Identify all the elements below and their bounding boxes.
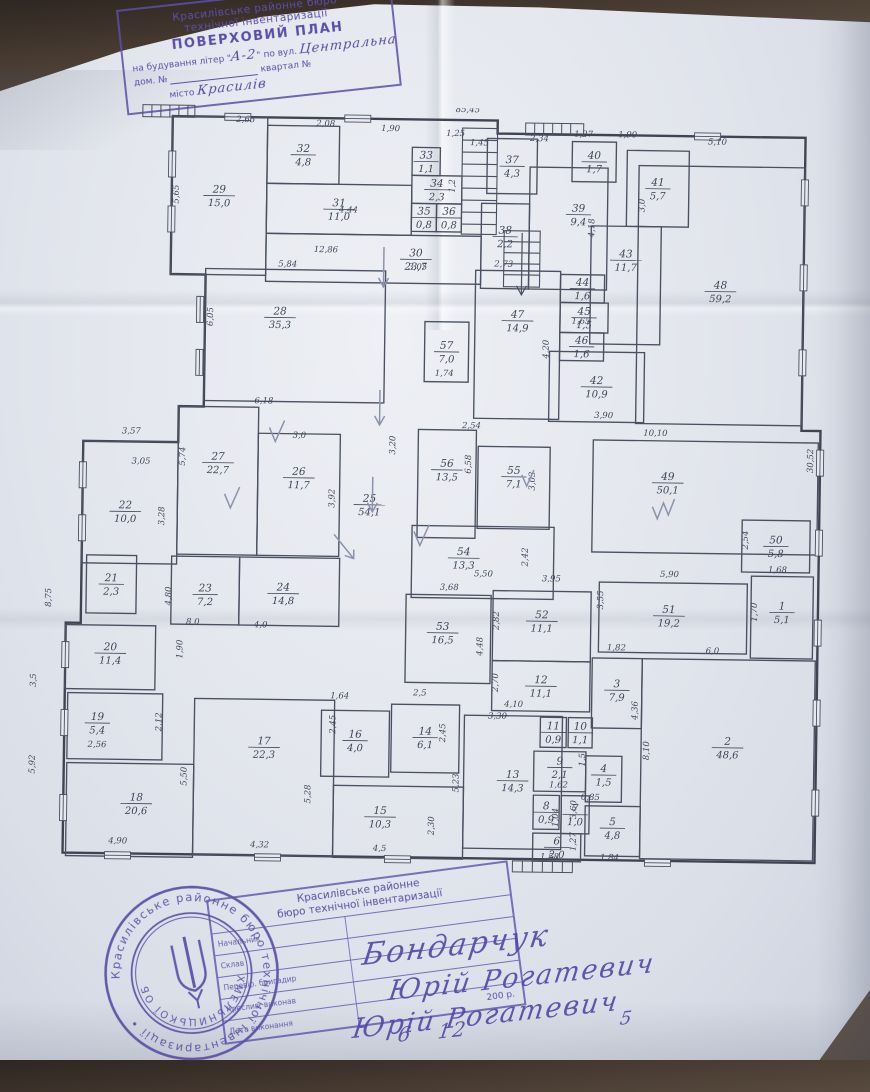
room-25-area: 54,1 bbox=[358, 507, 380, 518]
dim-label: 3,90 bbox=[594, 411, 614, 421]
stamp-city-label: місто bbox=[169, 88, 195, 101]
dim-label: 1,74 bbox=[435, 369, 454, 379]
dim-label: 1,27 bbox=[569, 832, 579, 852]
room-5-area: 4,8 bbox=[603, 831, 620, 842]
room-52-number: 52 bbox=[535, 609, 549, 621]
room-14-number: 14 bbox=[418, 726, 432, 738]
dim-label: 4,32 bbox=[249, 840, 269, 850]
room-47-number: 47 bbox=[510, 309, 525, 321]
room-2-area: 48,6 bbox=[715, 750, 739, 761]
dim-label: 3,05 bbox=[408, 262, 427, 272]
room-43-number: 43 bbox=[618, 248, 633, 260]
room-3-number: 3 bbox=[614, 678, 621, 690]
room-54-area: 13,3 bbox=[452, 560, 474, 571]
dim-label: 5,90 bbox=[660, 570, 680, 580]
room-20-area: 11,4 bbox=[99, 656, 121, 667]
room-49-walls bbox=[592, 440, 819, 555]
room-48-area: 59,2 bbox=[709, 294, 731, 305]
dim-label: 4,90 bbox=[107, 836, 128, 846]
room-26-area: 11,7 bbox=[287, 480, 310, 491]
dim-label: 4,36 bbox=[630, 700, 640, 721]
floor-plan: 2915,0324,83111,0331,1342,3350,8360,8302… bbox=[17, 102, 840, 889]
room-12-number: 12 bbox=[534, 674, 548, 686]
room-27-walls bbox=[177, 406, 259, 555]
room-35-area: 0,8 bbox=[416, 220, 432, 231]
dim-label: 2,45 bbox=[328, 715, 338, 735]
room-27-area: 22,7 bbox=[206, 465, 230, 476]
room-labels: 2915,0324,83111,0331,1342,3350,8360,8302… bbox=[83, 140, 801, 864]
dim-label: 4,18 bbox=[587, 218, 597, 239]
room-34-area: 2,3 bbox=[428, 192, 445, 203]
room-50-number: 50 bbox=[769, 534, 783, 546]
dim-label: 5,28 bbox=[303, 784, 313, 804]
room-18-area: 20,6 bbox=[124, 806, 148, 817]
dim-label: 0,85 bbox=[581, 793, 600, 803]
dim-label: 2,08 bbox=[315, 119, 336, 129]
room-57-area: 7,0 bbox=[438, 354, 455, 365]
room-51-area: 19,2 bbox=[658, 618, 680, 629]
dim-label: 4,44 bbox=[338, 205, 358, 215]
room-39-area: 9,4 bbox=[570, 217, 586, 228]
room-17-area: 22,3 bbox=[252, 750, 275, 761]
dim-label: 1,27 bbox=[574, 130, 594, 140]
dim-label: 3,60 bbox=[569, 800, 579, 820]
dim-label: 1,45 bbox=[470, 138, 489, 148]
dim-label: 3,20 bbox=[388, 435, 398, 455]
room-6-number: 6 bbox=[553, 835, 560, 847]
room-37-number: 37 bbox=[505, 154, 519, 166]
room-36-number: 36 bbox=[442, 206, 456, 218]
room-56-number: 56 bbox=[440, 458, 454, 470]
dim-label: 3,5 bbox=[29, 673, 39, 687]
room-33-area: 1,1 bbox=[418, 164, 434, 175]
dim-label: 5,50 bbox=[179, 766, 189, 786]
room-37-area: 4,3 bbox=[503, 169, 520, 180]
dim-label: 2,34 bbox=[529, 134, 549, 144]
dim-label: 3,28 bbox=[157, 506, 167, 526]
dim-label: 1,90 bbox=[381, 124, 401, 134]
room-21-area: 2,3 bbox=[102, 587, 119, 598]
room-13-area: 14,3 bbox=[501, 783, 523, 794]
dim-label: 2,45 bbox=[438, 723, 448, 743]
dim-label: 2,54 bbox=[461, 421, 481, 431]
room-5-number: 5 bbox=[609, 816, 616, 828]
dim-label: 6,0 bbox=[706, 647, 720, 657]
room-29-number: 29 bbox=[212, 184, 227, 196]
room-32-number: 32 bbox=[297, 143, 311, 155]
room-1-area: 5,1 bbox=[774, 615, 790, 626]
room-44-area: 1,6 bbox=[574, 291, 591, 302]
dim-label: 12,86 bbox=[314, 245, 339, 255]
room-36-area: 0,8 bbox=[441, 220, 457, 231]
room-41-number: 41 bbox=[650, 177, 665, 189]
dim-label: 5,74 bbox=[178, 447, 188, 466]
room-1-number: 1 bbox=[779, 601, 786, 613]
dim-label: 3,57 bbox=[122, 426, 142, 436]
room-15-number: 15 bbox=[373, 805, 387, 817]
room-41-area: 5,7 bbox=[650, 191, 667, 202]
dim-label: 8,10 bbox=[642, 741, 652, 761]
room-33-number: 33 bbox=[420, 149, 434, 161]
dim-label: 2,73 bbox=[493, 260, 513, 270]
room-56-area: 13,5 bbox=[436, 472, 458, 483]
room-30-number: 30 bbox=[409, 247, 423, 259]
dim-label: 1,68 bbox=[768, 565, 788, 575]
dim-label: 5,10 bbox=[708, 137, 728, 147]
dim-label: 1,04 bbox=[551, 808, 561, 827]
pencil-annotations bbox=[224, 245, 678, 563]
room-47-area: 14,9 bbox=[506, 323, 529, 334]
room-50-area: 5,8 bbox=[768, 549, 784, 560]
dim-label: 30,52 bbox=[806, 449, 816, 473]
room-21-number: 21 bbox=[104, 572, 119, 584]
stamp-building-mid: " по вул. bbox=[256, 47, 297, 61]
dim-label: 4,48 bbox=[475, 636, 485, 657]
dim-label: 1,70 bbox=[750, 602, 760, 622]
room-34-number: 34 bbox=[430, 178, 444, 190]
dim-label: 3,05 bbox=[131, 456, 150, 466]
room-18-number: 18 bbox=[130, 791, 144, 803]
room-55-number: 55 bbox=[507, 465, 521, 477]
room-26-number: 26 bbox=[291, 466, 306, 478]
dim-label: 4,80 bbox=[164, 586, 174, 607]
room-4-area: 1,5 bbox=[596, 777, 612, 788]
room-46-number: 46 bbox=[574, 335, 589, 347]
room-49-area: 50,1 bbox=[656, 485, 678, 496]
dim-label: 6,58 bbox=[464, 454, 474, 474]
room-23-number: 23 bbox=[197, 582, 212, 594]
dim-label: 1,65 bbox=[571, 317, 590, 327]
room-38-number: 38 bbox=[498, 225, 512, 237]
dim-label: 3,95 bbox=[542, 574, 561, 584]
room-17-walls bbox=[193, 698, 335, 856]
room-46-area: 1,6 bbox=[573, 349, 590, 360]
room-48-number: 48 bbox=[713, 280, 728, 292]
room-54-walls bbox=[411, 525, 554, 599]
dim-label: 1,62 bbox=[549, 780, 568, 790]
dim-label: 1,90 bbox=[175, 639, 185, 659]
room-35-number: 35 bbox=[417, 205, 431, 217]
dim-label: 2,82 bbox=[492, 611, 502, 631]
room-22-number: 22 bbox=[118, 499, 133, 511]
room-30-walls bbox=[266, 233, 482, 284]
dim-label: 5,65 bbox=[172, 185, 182, 204]
room-19-number: 19 bbox=[91, 711, 105, 723]
room-27-number: 27 bbox=[210, 451, 225, 463]
room-28-area: 35,3 bbox=[269, 320, 291, 331]
room-53-area: 16,5 bbox=[431, 635, 453, 646]
room-3-area: 7,9 bbox=[609, 693, 626, 704]
room-53-number: 53 bbox=[436, 621, 450, 633]
dim-label: 1,84 bbox=[600, 853, 619, 863]
room-10-area: 1,1 bbox=[572, 735, 588, 746]
signature-date-month: 12 bbox=[436, 1016, 469, 1044]
room-29-area: 15,0 bbox=[208, 198, 231, 209]
room-12-area: 11,1 bbox=[530, 689, 552, 700]
dim-label: 1,2 bbox=[448, 179, 458, 193]
dim-label: 1,82 bbox=[607, 643, 626, 653]
room-9-number: 9 bbox=[556, 755, 563, 767]
room-40-number: 40 bbox=[587, 150, 602, 162]
dim-label: 3,30 bbox=[488, 711, 508, 721]
room-55-area: 7,1 bbox=[506, 479, 522, 490]
dim-label: 2,70 bbox=[491, 672, 501, 693]
room-15-walls bbox=[332, 785, 463, 859]
dim-label: 6,18 bbox=[254, 396, 274, 406]
dim-label: 5,92 bbox=[28, 755, 38, 774]
room-43-walls bbox=[590, 226, 662, 345]
dim-label: 3,68 bbox=[440, 583, 460, 593]
room-39-number: 39 bbox=[572, 203, 586, 215]
dim-label: 4,10 bbox=[503, 700, 524, 710]
dim-label: 5,23 bbox=[451, 774, 461, 793]
room-8-number: 8 bbox=[543, 800, 550, 812]
floor-plan-drawing: 2915,0324,83111,0331,1342,3350,8360,8302… bbox=[17, 102, 840, 885]
room-19-area: 5,4 bbox=[89, 725, 105, 736]
dim-label: 3,55 bbox=[596, 591, 606, 610]
trident-icon bbox=[170, 934, 213, 1011]
room-54-number: 54 bbox=[457, 546, 471, 558]
dim-label: 1,5 bbox=[578, 753, 588, 767]
dim-label: 5,50 bbox=[474, 569, 494, 579]
dim-label: 6,05 bbox=[206, 307, 216, 326]
room-52-area: 11,1 bbox=[530, 624, 552, 635]
dim-label: 2,5 bbox=[412, 688, 427, 698]
photo-of-document: { "top_stamp": { "line1": "Красилівське … bbox=[0, 0, 870, 1060]
dim-label: 3,0 bbox=[638, 198, 648, 212]
room-11-number: 11 bbox=[547, 720, 561, 732]
dim-label: 2,42 bbox=[521, 547, 531, 567]
dim-label: 2,56 bbox=[86, 740, 107, 750]
room-11-area: 0,9 bbox=[545, 735, 562, 746]
room-13-number: 13 bbox=[506, 769, 520, 781]
room-44-number: 44 bbox=[575, 277, 590, 289]
room-28-walls bbox=[204, 268, 386, 403]
room-28-number: 28 bbox=[272, 305, 287, 317]
dim-label: 1,64 bbox=[330, 691, 349, 701]
room-22-area: 10,0 bbox=[114, 514, 137, 525]
room-49-number: 49 bbox=[660, 471, 675, 483]
dim-label: 4,5 bbox=[372, 844, 387, 854]
room-32-area: 4,8 bbox=[294, 157, 311, 168]
room-43-area: 11,7 bbox=[615, 263, 638, 274]
dim-label: 4,20 bbox=[541, 339, 551, 360]
room-24-area: 14,8 bbox=[272, 596, 294, 607]
room-42-number: 42 bbox=[589, 375, 604, 387]
dim-label: 3,92 bbox=[327, 489, 337, 508]
dim-label: 10,10 bbox=[643, 429, 668, 439]
room-56-walls bbox=[417, 429, 477, 538]
dim-label: 3,0 bbox=[293, 431, 307, 441]
room-16-number: 16 bbox=[348, 729, 362, 741]
room-20-number: 20 bbox=[103, 641, 118, 653]
dim-label: 1,58 bbox=[540, 852, 560, 862]
dim-label: 1,25 bbox=[446, 129, 465, 139]
room-14-area: 6,1 bbox=[417, 740, 433, 751]
dim-label: 4,0 bbox=[253, 620, 268, 630]
room-19-walls bbox=[67, 693, 163, 760]
dim-label: 8,0 bbox=[186, 617, 200, 627]
room-24-number: 24 bbox=[275, 582, 290, 594]
room-40-area: 1,7 bbox=[586, 164, 603, 175]
room-42-area: 10,9 bbox=[585, 389, 608, 400]
room-17-number: 17 bbox=[257, 735, 271, 747]
room-23-area: 7,2 bbox=[197, 597, 213, 608]
dim-label: 5,84 bbox=[278, 260, 297, 270]
room-16-area: 4,0 bbox=[346, 743, 364, 754]
dim-label: 8,75 bbox=[44, 588, 54, 607]
room-25-number: 25 bbox=[362, 493, 377, 505]
dim-label: 2,30 bbox=[427, 816, 437, 837]
room-51-number: 51 bbox=[662, 604, 676, 616]
stamp-building-handwritten: А-2 bbox=[231, 47, 257, 65]
room-10-number: 10 bbox=[574, 721, 588, 733]
dim-label: 1,90 bbox=[618, 130, 638, 140]
dim-label: 2,65 bbox=[235, 115, 255, 125]
room-14-walls bbox=[391, 704, 460, 773]
dim-label: 2,54 bbox=[741, 531, 751, 551]
room-57-number: 57 bbox=[440, 340, 454, 352]
room-38-area: 2,2 bbox=[496, 239, 513, 250]
dim-label: 2,12 bbox=[154, 712, 164, 732]
room-15-area: 10,3 bbox=[369, 819, 391, 830]
room-4-number: 4 bbox=[599, 763, 607, 775]
room-2-number: 2 bbox=[723, 736, 731, 748]
